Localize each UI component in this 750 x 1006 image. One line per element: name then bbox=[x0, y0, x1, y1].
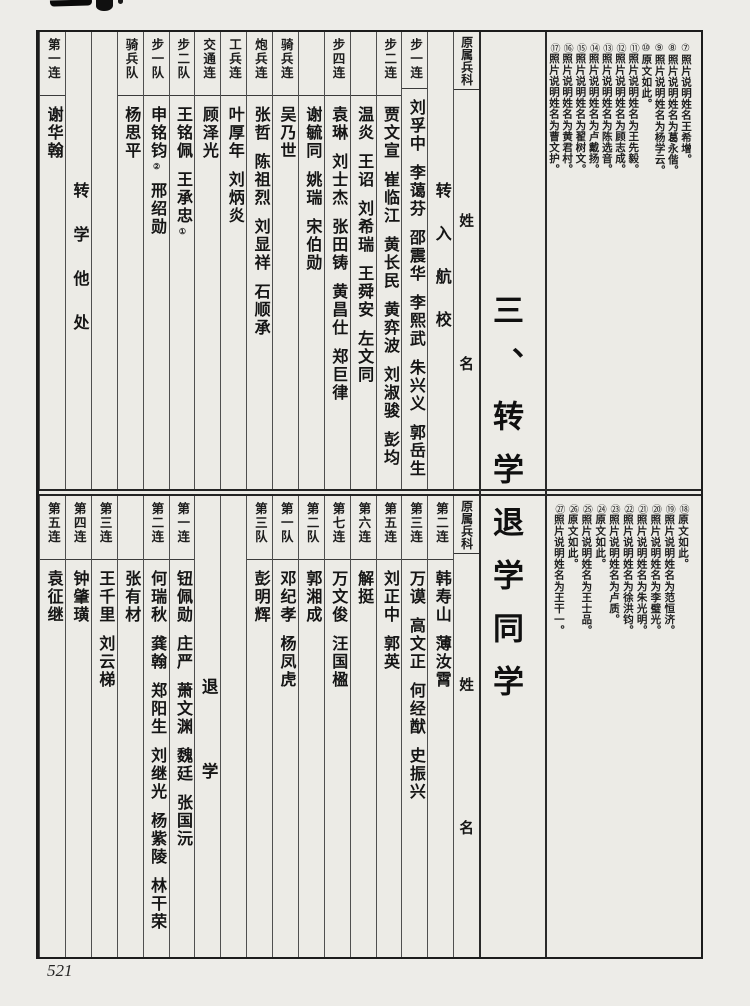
annotation-text: 照片说明姓名为王士品。 bbox=[580, 514, 591, 636]
person-name: 王舜安 bbox=[355, 265, 371, 319]
annotation-text: 照片说明姓名为范恒济。 bbox=[663, 514, 674, 636]
person-name: 彭明辉 bbox=[252, 570, 268, 624]
column-第一队: 第一队邓纪孝杨凤虎 bbox=[272, 496, 298, 957]
person-name: 龚翰 bbox=[148, 635, 164, 671]
person-name: 魏廷 bbox=[174, 747, 190, 783]
unit-header: 步四连 bbox=[331, 38, 344, 95]
annotation-number: ⑭ bbox=[588, 43, 599, 53]
column-步二队: 步二队王铭佩王承忠① bbox=[169, 32, 195, 489]
annotation-number: ㉒ bbox=[622, 504, 633, 514]
column-第五连: 第五连袁征继 bbox=[39, 496, 65, 957]
person-name: 朱兴义 bbox=[407, 359, 423, 413]
person-name: 刘希瑞 bbox=[355, 200, 371, 254]
footnote-marker: ② bbox=[152, 162, 161, 171]
annotation: ㉒照片说明姓名为徐洪钧。 bbox=[620, 504, 634, 957]
branch-header-label: 原属兵科 bbox=[461, 500, 473, 553]
person-name: 石顺承 bbox=[252, 283, 268, 337]
person-name: 宋伯勋 bbox=[303, 218, 319, 272]
page-number: 521 bbox=[47, 961, 73, 981]
column-第三队: 第三队彭明辉 bbox=[246, 496, 272, 957]
person-name: 王承忠① bbox=[174, 171, 190, 236]
branch-header-cell: 原属兵科 bbox=[454, 496, 479, 554]
annotation: ⑲照片说明姓名为范恒济。 bbox=[661, 504, 675, 957]
person-name: 林干荣 bbox=[148, 877, 164, 931]
person-name: 张国沅 bbox=[174, 794, 190, 848]
person-name: 萧文渊 bbox=[174, 682, 190, 736]
unit-header: 第一连 bbox=[46, 38, 59, 95]
person-name: 万谟 bbox=[407, 570, 423, 606]
annotation-number: ⑯ bbox=[561, 43, 572, 53]
person-name: 袁琳 bbox=[329, 106, 345, 142]
unit-header: 第三连 bbox=[409, 502, 422, 559]
column-第二连: 第二连何瑞秋龚翰郑阳生刘继光杨紫陵林干荣 bbox=[143, 496, 169, 957]
column-cont: 张有材 bbox=[117, 496, 143, 957]
annotation-number: ⑨ bbox=[654, 43, 665, 54]
person-name: 顾泽光 bbox=[200, 106, 216, 160]
person-name: 谢毓同 bbox=[303, 106, 319, 160]
annotation-number: ⑫ bbox=[614, 43, 625, 53]
person-name: 刘士杰 bbox=[329, 153, 345, 207]
column-empty bbox=[91, 32, 117, 489]
bottom-table: 原属兵科姓名第二连韩寿山薄汝霄第三连万谟高文正何经猷史振兴第五连刘正中郭英第六连… bbox=[39, 496, 479, 957]
column-第二连: 第二连韩寿山薄汝霄 bbox=[427, 496, 453, 957]
unit-header: 骑兵队 bbox=[124, 38, 137, 95]
person-name: 杨紫陵 bbox=[148, 812, 164, 866]
annotation: ㉔原文如此。 bbox=[592, 504, 606, 957]
annotation-text: 照片说明姓名为葛永偕。 bbox=[667, 54, 678, 176]
annotation: ⑱原文如此。 bbox=[675, 504, 689, 957]
annotation-text: 照片说明姓名为卢戴扬。 bbox=[588, 53, 599, 175]
unit-header: 交通连 bbox=[202, 38, 215, 95]
column-步二连: 步二连贾文宣崔临江黄长民黄弈波刘淑骏彭均 bbox=[376, 32, 402, 489]
annotation: ⑪照片说明姓名为王先毅。 bbox=[626, 43, 639, 500]
annotation-text: 照片说明姓名为李璧光。 bbox=[649, 514, 660, 636]
person-name: 黄弈波 bbox=[381, 301, 397, 355]
person-name: 王诏 bbox=[355, 153, 371, 189]
name-header: 姓名 bbox=[459, 554, 474, 838]
person-name: 郑阳生 bbox=[148, 682, 164, 736]
unit-header: 骑兵连 bbox=[279, 38, 292, 95]
annotation-number: ㉗ bbox=[553, 504, 564, 514]
annotation-number: ㉖ bbox=[567, 504, 578, 514]
person-name: 刘炳炎 bbox=[226, 171, 242, 225]
annotation-text: 照片说明姓名王希增。 bbox=[680, 54, 691, 165]
note-label: 退学 bbox=[200, 496, 217, 847]
unit-header: 第四连 bbox=[72, 502, 85, 559]
annotation-number: ⑧ bbox=[667, 43, 678, 54]
person-name: 庄严 bbox=[174, 635, 190, 671]
scanned-page: 原属兵科姓名转入航校步一连刘孚中李蔼芬邵震华李熙武朱兴义郭岳生步二连贾文宣崔临江… bbox=[0, 0, 750, 1006]
person-name: 王铭佩 bbox=[174, 106, 190, 160]
person-name: 钮佩勋 bbox=[174, 570, 190, 624]
person-name: 张哲 bbox=[252, 106, 268, 142]
column-cont: 谢毓同姚瑞宋伯勋 bbox=[298, 32, 324, 489]
section-title: 三、转学退学同学 bbox=[490, 294, 521, 718]
person-name: 刘显祥 bbox=[252, 218, 268, 272]
person-name: 刘继光 bbox=[148, 747, 164, 801]
person-name: 邢绍勋 bbox=[148, 182, 164, 236]
person-name: 温炎 bbox=[355, 106, 371, 142]
person-name: 张有材 bbox=[122, 570, 138, 624]
annotation: ⑬照片说明姓名为陈选音。 bbox=[600, 43, 613, 500]
branch-header-label: 原属兵科 bbox=[461, 36, 473, 89]
footnote-marker: ① bbox=[178, 227, 187, 236]
annotation: ㉕照片说明姓名为王士品。 bbox=[579, 504, 593, 957]
column-步四连: 步四连袁琳刘士杰张田铸黄昌仕郑巨律 bbox=[324, 32, 350, 489]
annotation: ㉗照片说明姓名为王干一。 bbox=[551, 504, 565, 957]
person-name: 李熙武 bbox=[407, 294, 423, 348]
person-name: 刘淑骏 bbox=[381, 366, 397, 420]
person-name: 彭均 bbox=[381, 431, 397, 467]
annotation: ㉖原文如此。 bbox=[565, 504, 579, 957]
annotation-number: ㉑ bbox=[636, 504, 647, 514]
annotations-bottom: ⑱原文如此。⑲照片说明姓名为范恒济。⑳照片说明姓名为李璧光。㉑照片说明姓名为朱光… bbox=[551, 496, 701, 957]
unit-header: 第二队 bbox=[305, 502, 318, 559]
annotation-text: 原文如此。 bbox=[640, 54, 651, 110]
annotation-text: 照片说明姓名为陈选音。 bbox=[601, 53, 612, 175]
column-label: 转学他处 bbox=[65, 32, 91, 489]
person-name: 申铭钧② bbox=[148, 106, 164, 171]
unit-header: 第六连 bbox=[357, 502, 370, 559]
person-name: 叶厚年 bbox=[226, 106, 242, 160]
annotation: ⑦照片说明姓名王希增。 bbox=[679, 43, 692, 500]
annotation: ⑫照片说明姓名为顾志成。 bbox=[613, 43, 626, 500]
scan-artifact bbox=[118, 0, 123, 4]
unit-header: 步一连 bbox=[409, 38, 422, 88]
person-name: 张田铸 bbox=[329, 218, 345, 272]
annotations-top: ⑦照片说明姓名王希增。⑧照片说明姓名为葛永偕。⑨照片说明姓名为杨学云。⑩原文如此… bbox=[547, 32, 701, 500]
annotation-text: 照片说明姓名为王先毅。 bbox=[627, 53, 638, 175]
column-工兵连: 工兵连叶厚年刘炳炎 bbox=[220, 32, 246, 489]
column-第六连: 第六连解挺 bbox=[350, 496, 376, 957]
person-name: 薄汝霄 bbox=[433, 635, 449, 689]
column-label: 转入航校 bbox=[427, 32, 453, 489]
annotation: ⑭照片说明姓名为卢戴扬。 bbox=[586, 43, 599, 500]
person-name: 杨凤虎 bbox=[277, 635, 293, 689]
annotation: ㉓照片说明姓名为卢质。 bbox=[606, 504, 620, 957]
person-name: 韩寿山 bbox=[433, 570, 449, 624]
column-第五连: 第五连刘正中郭英 bbox=[376, 496, 402, 957]
unit-header: 第五连 bbox=[46, 502, 59, 559]
annotation-text: 照片说明姓名为曹文护。 bbox=[548, 53, 559, 175]
annotation-text: 照片说明姓名为王干一。 bbox=[553, 514, 564, 636]
annotation-text: 照片说明姓名为杨学云。 bbox=[654, 54, 665, 176]
note-label: 转学他处 bbox=[70, 32, 86, 358]
person-name: 左文同 bbox=[355, 330, 371, 384]
person-name: 郭英 bbox=[381, 635, 397, 671]
unit-header: 第五连 bbox=[383, 502, 396, 559]
annotation-number: ⑬ bbox=[601, 43, 612, 53]
annotation-number: ⑦ bbox=[680, 43, 691, 54]
person-name: 邵震华 bbox=[407, 229, 423, 283]
annotation: ⑮照片说明姓名为翟树文。 bbox=[573, 43, 586, 500]
annotation: ⑧照片说明姓名为葛永偕。 bbox=[666, 43, 679, 500]
annotation-number: ㉓ bbox=[608, 504, 619, 514]
person-name: 黄长民 bbox=[381, 236, 397, 290]
unit-header: 第一队 bbox=[279, 502, 292, 559]
annotation: ㉑照片说明姓名为朱光明。 bbox=[634, 504, 648, 957]
annotation-text: 原文如此。 bbox=[594, 514, 605, 570]
person-name: 何经猷 bbox=[407, 682, 423, 736]
column-head: 原属兵科姓名 bbox=[453, 32, 479, 489]
column-交通连: 交通连顾泽光 bbox=[194, 32, 220, 489]
person-name: 刘云梯 bbox=[96, 635, 112, 689]
page-border-box: 原属兵科姓名转入航校步一连刘孚中李蔼芬邵震华李熙武朱兴义郭岳生步二连贾文宣崔临江… bbox=[36, 30, 703, 959]
person-name: 刘正中 bbox=[381, 570, 397, 624]
name-header: 姓名 bbox=[459, 90, 474, 374]
person-name: 郭湘成 bbox=[303, 570, 319, 624]
column-步一连: 步一连刘孚中李蔼芬邵震华李熙武朱兴义郭岳生 bbox=[401, 32, 427, 489]
annotation-number: ⑮ bbox=[574, 43, 585, 53]
top-table: 原属兵科姓名转入航校步一连刘孚中李蔼芬邵震华李熙武朱兴义郭岳生步二连贾文宣崔临江… bbox=[39, 32, 479, 489]
annotation: ⑯照片说明姓名为黄君村。 bbox=[560, 43, 573, 500]
column-第七连: 第七连万文俊汪国楹 bbox=[324, 496, 350, 957]
person-name: 袁征继 bbox=[45, 570, 61, 624]
section-title-column: 三、转学退学同学 bbox=[479, 32, 547, 957]
column-第三连: 第三连万谟高文正何经猷史振兴 bbox=[401, 496, 427, 957]
person-name: 王千里 bbox=[96, 570, 112, 624]
annotation-number: ⑱ bbox=[677, 504, 688, 514]
person-name: 钟肇璜 bbox=[70, 570, 86, 624]
unit-header: 步二连 bbox=[383, 38, 396, 95]
annotation-text: 照片说明姓名为顾志成。 bbox=[614, 53, 625, 175]
annotation: ⑰照片说明姓名为曹文护。 bbox=[547, 43, 560, 500]
annotation-text: 原文如此。 bbox=[567, 514, 578, 570]
annotation-text: 照片说明姓名为卢质。 bbox=[608, 514, 619, 625]
column-第三连: 第三连王千里刘云梯 bbox=[91, 496, 117, 957]
column-第一连: 第一连谢华翰 bbox=[39, 32, 65, 489]
person-name: 杨思平 bbox=[122, 106, 138, 160]
column-第一连: 第一连钮佩勋庄严萧文渊魏廷张国沅 bbox=[169, 496, 195, 957]
person-name: 郭岳生 bbox=[407, 424, 423, 478]
scan-artifact bbox=[96, 0, 113, 11]
column-第二队: 第二队郭湘成 bbox=[298, 496, 324, 957]
column-骑兵队: 骑兵队杨思平 bbox=[117, 32, 143, 489]
unit-header: 第二连 bbox=[150, 502, 163, 559]
person-name: 刘孚中 bbox=[407, 99, 423, 153]
person-name: 谢华翰 bbox=[45, 106, 61, 160]
unit-header: 第七连 bbox=[331, 502, 344, 559]
person-name: 邓纪孝 bbox=[277, 570, 293, 624]
annotation-number: ㉔ bbox=[594, 504, 605, 514]
annotation: ⑳照片说明姓名为李璧光。 bbox=[648, 504, 662, 957]
annotation-number: ⑰ bbox=[548, 43, 559, 53]
person-name: 黄昌仕 bbox=[329, 283, 345, 337]
column-empty bbox=[220, 496, 246, 957]
person-name: 高文正 bbox=[407, 617, 423, 671]
annotation-text: 照片说明姓名为徐洪钧。 bbox=[622, 514, 633, 636]
unit-header: 第三队 bbox=[253, 502, 266, 559]
person-name: 姚瑞 bbox=[303, 171, 319, 207]
annotation-text: 原文如此。 bbox=[677, 514, 688, 570]
unit-header: 第三连 bbox=[98, 502, 111, 559]
column-cont: 温炎王诏刘希瑞王舜安左文同 bbox=[350, 32, 376, 489]
person-name: 吴乃世 bbox=[277, 106, 293, 160]
annotation-text: 照片说明姓名为翟树文。 bbox=[574, 53, 585, 175]
person-name: 汪国楹 bbox=[329, 635, 345, 689]
annotation-text: 照片说明姓名为朱光明。 bbox=[636, 514, 647, 636]
column-炮兵连: 炮兵连张哲陈祖烈刘显祥石顺承 bbox=[246, 32, 272, 489]
unit-header: 工兵连 bbox=[227, 38, 240, 95]
annotation: ⑨照片说明姓名为杨学云。 bbox=[652, 43, 665, 500]
column-步一队: 步一队申铭钧②邢绍勋 bbox=[143, 32, 169, 489]
person-name: 李蔼芬 bbox=[407, 164, 423, 218]
annotation-number: ⑩ bbox=[640, 43, 651, 54]
person-name: 陈祖烈 bbox=[252, 153, 268, 207]
annotation-number: ⑲ bbox=[663, 504, 674, 514]
unit-header: 第一连 bbox=[176, 502, 189, 559]
column-label: 退学 bbox=[194, 496, 220, 957]
person-name: 郑巨律 bbox=[329, 348, 345, 402]
person-name: 贾文宣 bbox=[381, 106, 397, 160]
column-head: 原属兵科姓名 bbox=[453, 496, 479, 957]
unit-header: 第二连 bbox=[434, 502, 447, 559]
annotation: ⑩原文如此。 bbox=[639, 43, 652, 500]
unit-header: 炮兵连 bbox=[253, 38, 266, 95]
column-骑兵连: 骑兵连吴乃世 bbox=[272, 32, 298, 489]
annotation-number: ⑪ bbox=[627, 43, 638, 53]
unit-header: 步一队 bbox=[150, 38, 163, 95]
person-name: 解挺 bbox=[355, 570, 371, 606]
unit-header: 步二队 bbox=[176, 38, 189, 95]
annotation-number: ㉕ bbox=[580, 504, 591, 514]
person-name: 崔临江 bbox=[381, 171, 397, 225]
annotation-text: 照片说明姓名为黄君村。 bbox=[561, 53, 572, 175]
branch-header-cell: 原属兵科 bbox=[454, 32, 479, 90]
annotations-region: ⑦照片说明姓名王希增。⑧照片说明姓名为葛永偕。⑨照片说明姓名为杨学云。⑩原文如此… bbox=[547, 32, 701, 957]
person-name: 万文俊 bbox=[329, 570, 345, 624]
person-name: 史振兴 bbox=[407, 747, 423, 801]
note-label: 转入航校 bbox=[433, 32, 449, 354]
annotation-number: ⑳ bbox=[649, 504, 660, 514]
person-name: 何瑞秋 bbox=[148, 570, 164, 624]
column-第四连: 第四连钟肇璜 bbox=[65, 496, 91, 957]
scan-artifact bbox=[50, 0, 92, 7]
